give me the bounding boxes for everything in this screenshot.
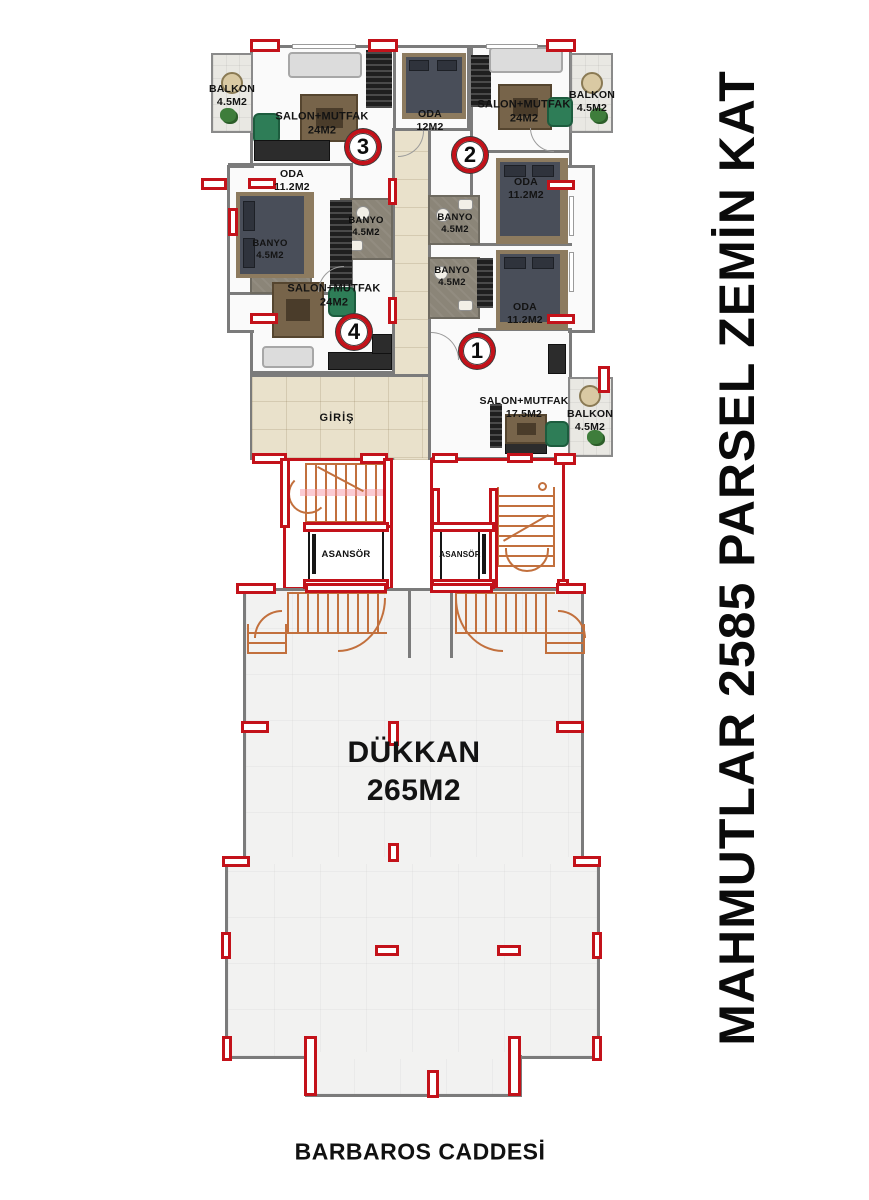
column [201, 178, 227, 190]
armchair [545, 421, 569, 447]
sofa [288, 52, 362, 78]
wall [393, 45, 396, 131]
column [236, 583, 276, 594]
label-balkon-top-right: BALKON 4.5M2 [569, 89, 615, 115]
room-area: 24M2 [320, 296, 348, 310]
label-oda-12m2: ODA 12M2 [416, 108, 443, 134]
label-salon-unit4: SALON+MUTFAK 24M2 [287, 282, 380, 310]
column [241, 721, 269, 733]
label-giris: GİRİŞ [320, 412, 355, 426]
column [556, 583, 586, 594]
apartment-right-wing [568, 165, 595, 333]
shop-floor-entry [305, 1055, 522, 1097]
label-salon-unit2: SALON+MUTFAK 24M2 [477, 98, 570, 126]
room-name: SALON+MUTFAK [477, 98, 570, 112]
room-area: 4.5M2 [217, 96, 247, 109]
column [507, 453, 533, 463]
window [569, 252, 574, 292]
column [221, 932, 231, 959]
unit-number: 3 [357, 134, 369, 160]
pillow [243, 201, 255, 231]
room-area: 24M2 [308, 124, 336, 138]
column [388, 178, 397, 205]
room-area: 4.5M2 [577, 102, 607, 115]
column [547, 180, 575, 190]
toilet [458, 199, 473, 210]
floor-seam [247, 857, 580, 864]
pillow [409, 60, 429, 71]
elevator-door [482, 534, 486, 574]
room-area: 4.5M2 [438, 277, 465, 289]
column [547, 314, 575, 324]
column [383, 458, 393, 528]
column [388, 297, 397, 324]
plan-title: MAHMUTLAR 2585 PARSEL ZEMİN KAT [708, 70, 766, 1046]
column [375, 945, 399, 956]
wall [408, 590, 411, 658]
room-name: DÜKKAN [348, 736, 481, 770]
elevator-left: ASANSÖR [308, 527, 384, 581]
elevator-left-label: ASANSÖR [322, 549, 371, 560]
column [508, 1036, 521, 1096]
room-name: ODA [418, 108, 442, 121]
column [388, 843, 399, 862]
room-area: 4.5M2 [256, 250, 283, 262]
column [432, 453, 458, 463]
stair-highlight [300, 489, 386, 496]
column [546, 39, 576, 52]
column [228, 208, 238, 236]
pillow [532, 257, 554, 269]
column [489, 488, 498, 588]
floor-plan-canvas: ASANSÖR ASANSÖR [0, 0, 869, 1200]
kitchen-counter [328, 352, 392, 370]
wall [450, 590, 453, 658]
column [554, 453, 576, 465]
column [248, 178, 276, 189]
column [305, 583, 387, 593]
elevator-right-label: ASANSÖR [439, 550, 480, 559]
unit-badge-4: 4 [336, 314, 372, 350]
column [497, 945, 521, 956]
window [569, 196, 574, 236]
label-banyo-unit2: BANYO 4.5M2 [437, 212, 472, 236]
room-name: SALON+MUTFAK [287, 282, 380, 296]
window [292, 44, 356, 49]
column [303, 522, 389, 532]
shop-floor-lower [225, 860, 600, 1059]
room-name: SALON+MUTFAK [479, 395, 568, 408]
column [250, 313, 278, 324]
label-balkon-bottom-right: BALKON 4.5M2 [567, 408, 613, 434]
label-dukkan: DÜKKAN 265M2 [348, 736, 481, 808]
label-oda-unit1: ODA 11.2M2 [507, 301, 543, 327]
kitchen-appliance [372, 334, 392, 354]
elevator-door [312, 534, 316, 574]
column [222, 856, 250, 867]
room-area: 11.2M2 [274, 181, 310, 194]
room-name: SALON+MUTFAK [275, 110, 368, 124]
wall [228, 163, 352, 166]
unit-number: 2 [464, 142, 476, 168]
room-name: ODA [514, 176, 538, 189]
label-banyo-unit3: BANYO 4.5M2 [348, 215, 383, 239]
floor-seam [309, 1052, 518, 1059]
wardrobe [366, 50, 392, 108]
label-oda-unit2: ODA 11.2M2 [508, 176, 544, 202]
column [304, 1036, 317, 1096]
column [556, 721, 584, 733]
label-oda-unit4: ODA 11.2M2 [274, 168, 310, 194]
room-name: BANYO [437, 212, 472, 224]
room-name: GİRİŞ [320, 412, 355, 426]
room-name: BALKON [567, 408, 613, 421]
room-area: 4.5M2 [441, 224, 468, 236]
room-name: BALKON [209, 83, 255, 96]
street-label: BARBAROS CADDESİ [295, 1139, 546, 1166]
pillow [437, 60, 457, 71]
room-name: ODA [513, 301, 537, 314]
column [598, 366, 610, 393]
unit-badge-3: 3 [345, 129, 381, 165]
unit-badge-1: 1 [459, 333, 495, 369]
column [573, 856, 601, 867]
label-salon-unit1: SALON+MUTFAK 17.5M2 [479, 395, 568, 421]
stair-post [538, 482, 547, 491]
room-name: BANYO [348, 215, 383, 227]
room-area: 11.2M2 [508, 189, 544, 202]
room-name: BANYO [434, 265, 469, 277]
label-banyo-unit1: BANYO 4.5M2 [434, 265, 469, 289]
wardrobe [477, 258, 493, 308]
room-name: BANYO [252, 238, 287, 250]
column [431, 522, 495, 532]
kitchen-counter [254, 140, 330, 161]
sofa [262, 346, 314, 368]
unit-number: 4 [348, 319, 360, 345]
column [368, 39, 398, 52]
room-area: 24M2 [510, 112, 538, 126]
column [280, 458, 290, 528]
room-area: 4.5M2 [352, 227, 379, 239]
toilet [458, 300, 473, 311]
room-name: ODA [280, 168, 304, 181]
wall [252, 371, 394, 374]
room-area: 17.5M2 [506, 408, 542, 421]
room-area: 265M2 [367, 774, 461, 808]
room-area: 11.2M2 [507, 314, 543, 327]
column [250, 39, 280, 52]
label-balkon-top-left: BALKON 4.5M2 [209, 83, 255, 109]
column [430, 583, 493, 593]
column [592, 932, 602, 959]
unit-badge-2: 2 [452, 137, 488, 173]
column [592, 1036, 602, 1061]
window [486, 44, 538, 49]
room-name: BALKON [569, 89, 615, 102]
elevator-right: ASANSÖR [440, 527, 480, 581]
column [427, 1070, 439, 1098]
kitchen-appliance [548, 344, 566, 374]
plant [220, 108, 236, 122]
label-banyo-unit4: BANYO 4.5M2 [252, 238, 287, 262]
column [222, 1036, 232, 1061]
room-area: 4.5M2 [575, 421, 605, 434]
pillow [504, 257, 526, 269]
room-area: 12M2 [416, 121, 443, 134]
unit-number: 1 [471, 338, 483, 364]
